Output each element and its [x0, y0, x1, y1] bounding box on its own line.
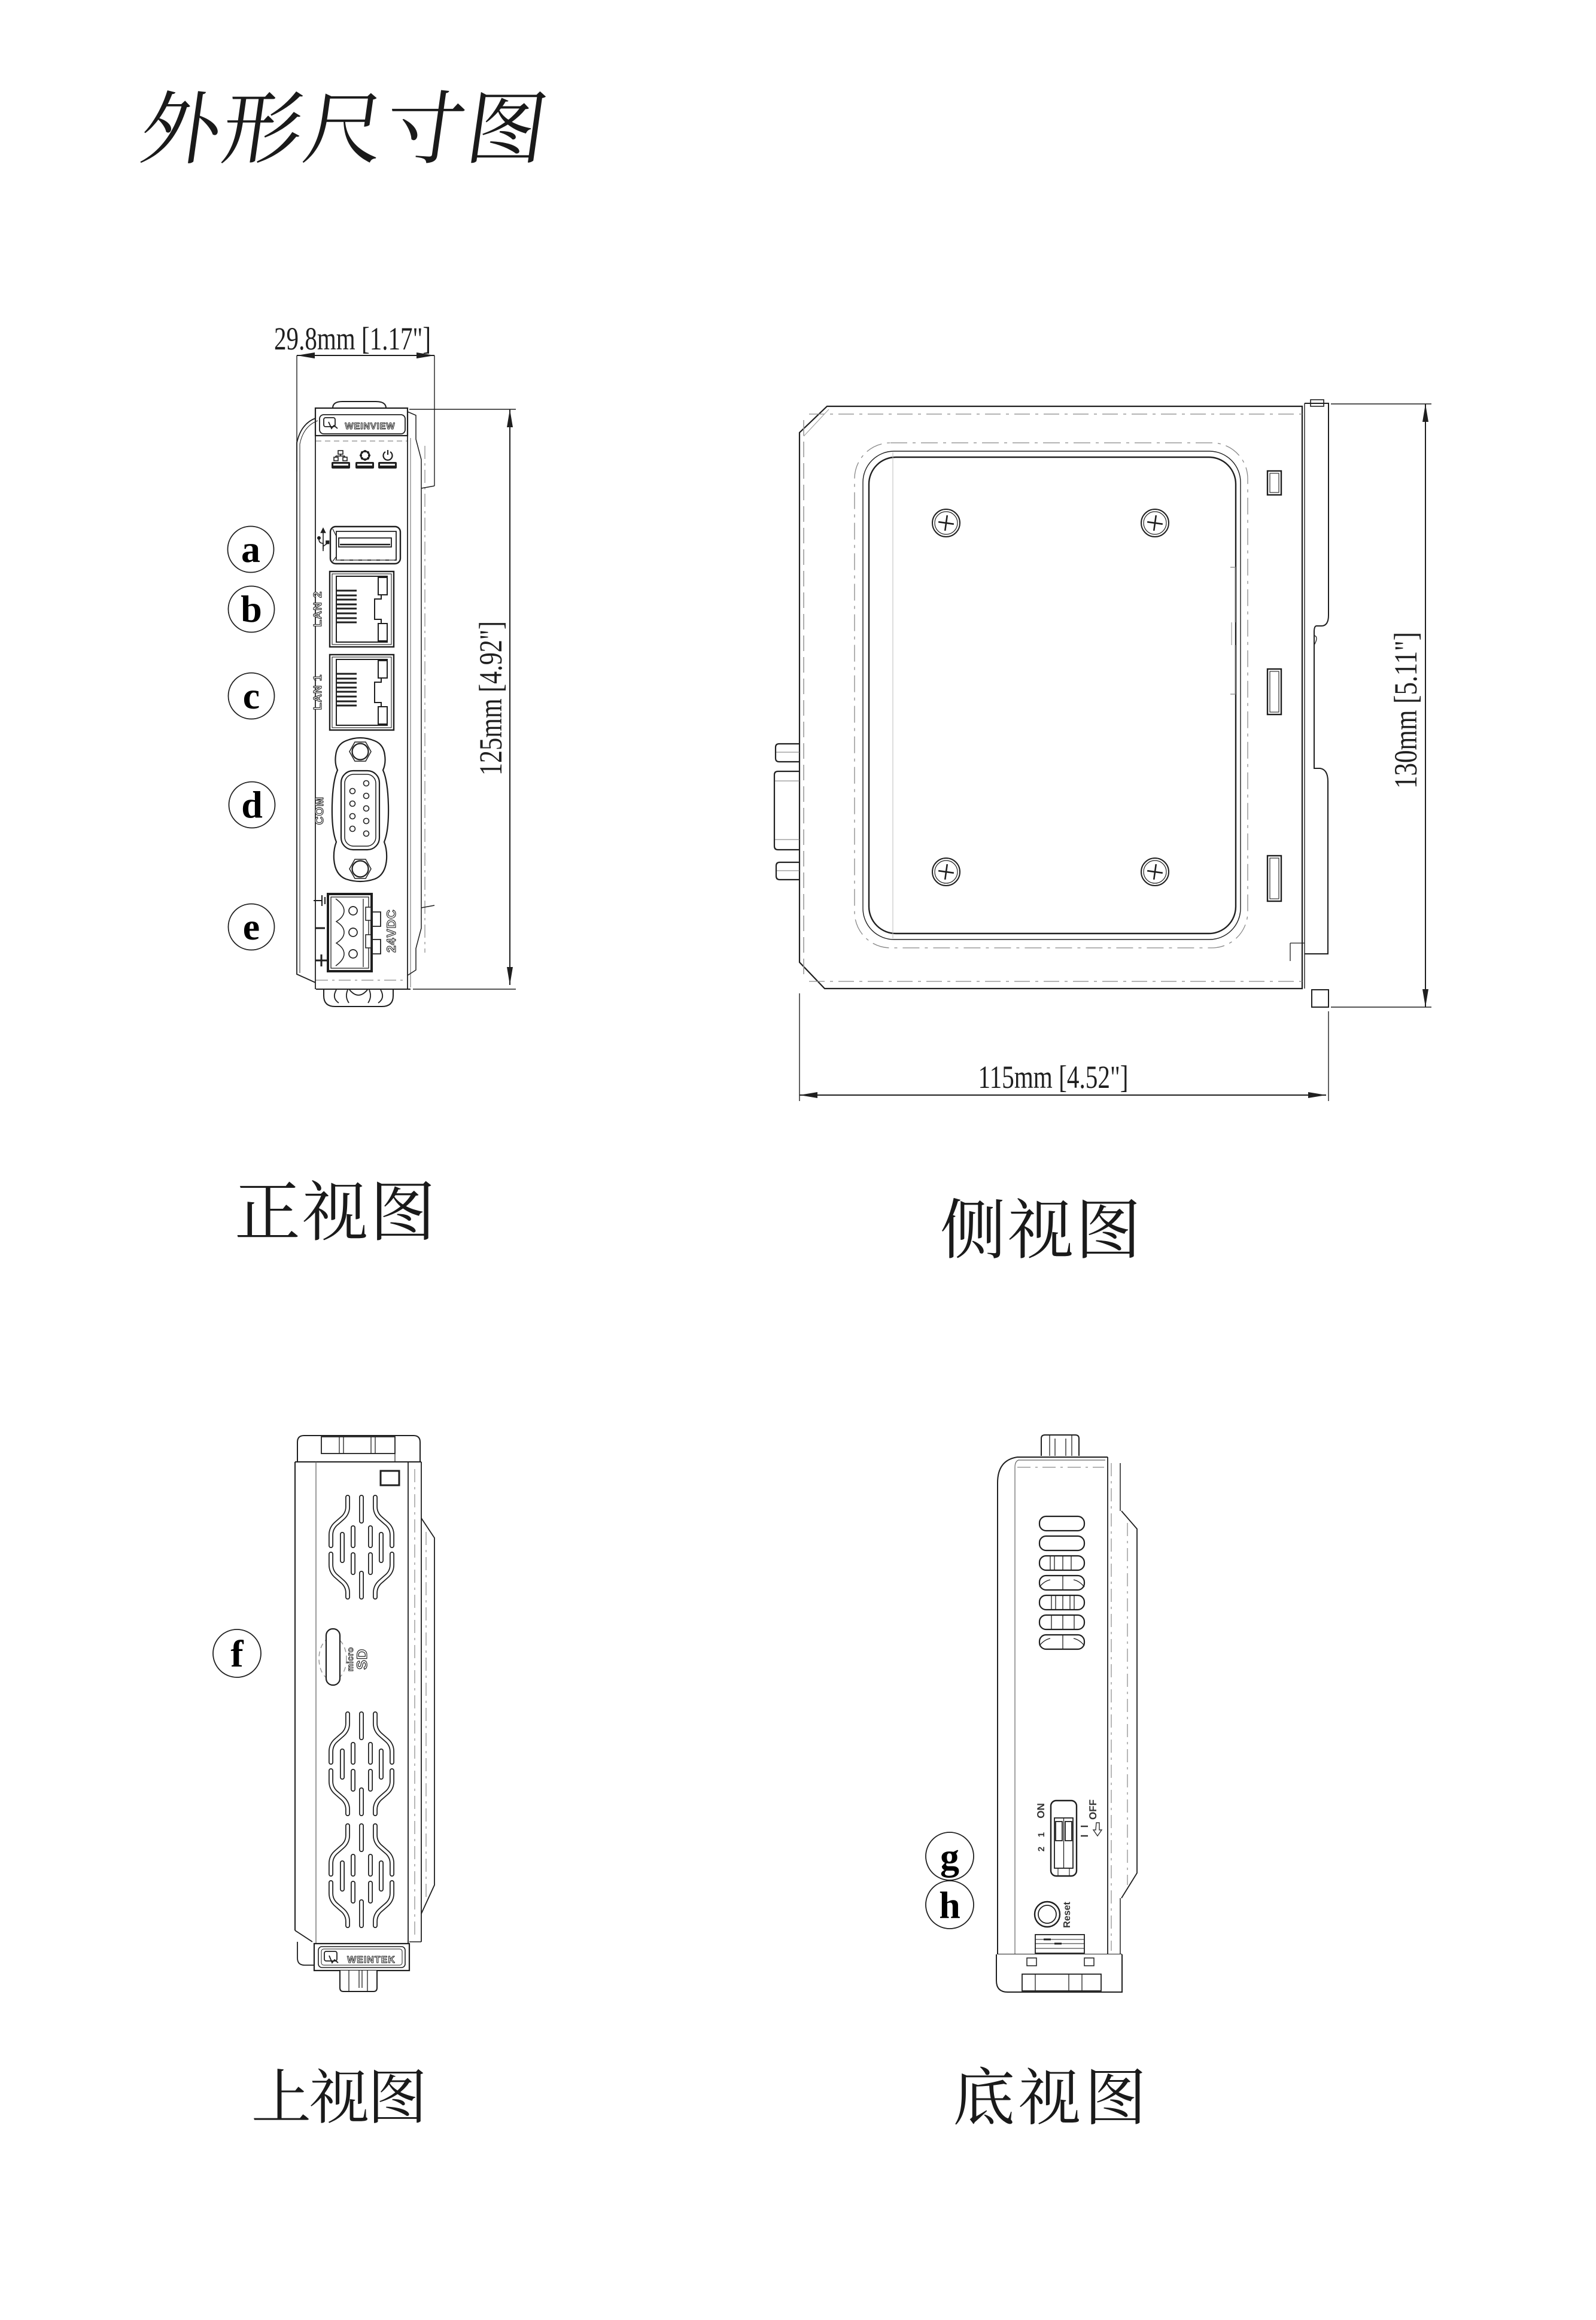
svg-text:h: h — [939, 1884, 960, 1926]
svg-text:g: g — [940, 1835, 959, 1878]
svg-text:f: f — [230, 1632, 244, 1675]
svg-text:a: a — [241, 528, 260, 570]
svg-text:d: d — [241, 783, 263, 826]
svg-text:e: e — [243, 905, 260, 948]
svg-text:29.8mm [1.17"]: 29.8mm [1.17"] — [274, 321, 431, 357]
svg-text:115mm [4.52"]: 115mm [4.52"] — [978, 1059, 1129, 1095]
svg-text:b: b — [241, 588, 262, 630]
svg-text:c: c — [243, 674, 260, 717]
svg-text:125mm [4.92"]: 125mm [4.92"] — [473, 621, 509, 776]
svg-text:130mm [5.11"]: 130mm [5.11"] — [1388, 632, 1424, 789]
